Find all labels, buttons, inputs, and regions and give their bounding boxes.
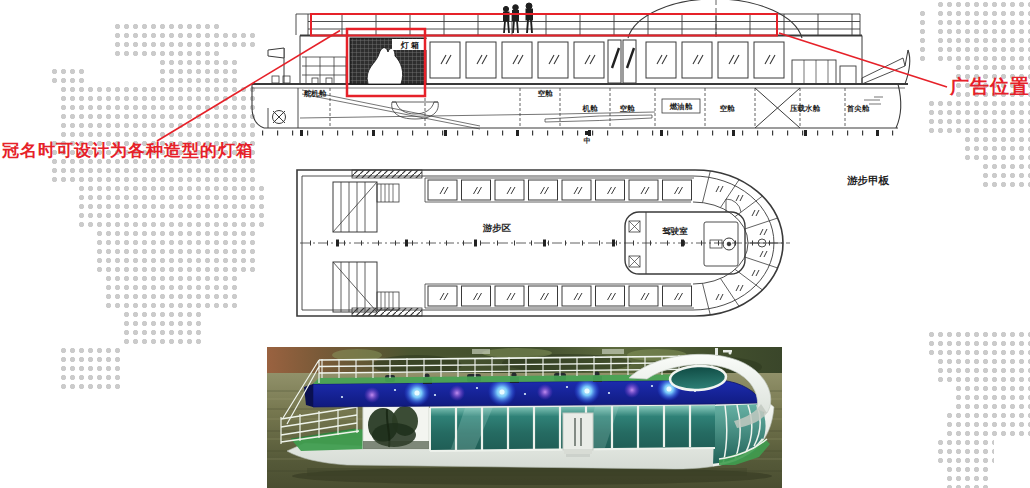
hull-internals: [300, 88, 845, 129]
photo-canopy-mast: [715, 348, 718, 355]
plan-door-swing: [726, 199, 741, 212]
boat-photo: [267, 347, 782, 488]
lightbox-annotation-text: 冠名时可设计为各种造型的灯箱: [2, 139, 254, 162]
compartment-label: 空舱: [538, 89, 554, 98]
compartment-label: 燃油舱: [669, 102, 693, 111]
people-figures: [503, 3, 532, 33]
waterline-marks: [864, 97, 883, 104]
ad-position-annotation-text: 广告位置: [950, 74, 1030, 100]
photo-cabin-door: [563, 413, 593, 457]
deck-plan-drawing: 驾驶室 游步区 游步甲板: [297, 170, 890, 316]
boat-diagrams: 灯 箱: [0, 0, 1030, 488]
compartment-label: 舵机舱: [303, 89, 327, 98]
wheelhouse-label: 驾驶室: [661, 226, 688, 236]
photo-billboard-panel: [363, 403, 429, 449]
promenade-area-label: 游步区: [482, 222, 512, 233]
lightbox-leader-line: [157, 31, 340, 142]
lightbox-area: 灯 箱: [350, 38, 428, 84]
midship-mark: 中: [584, 136, 591, 144]
lightbox-label: 灯 箱: [400, 41, 419, 50]
compartment-label: 首尖舱: [846, 104, 870, 113]
ad-position-highlight-box: [311, 14, 777, 36]
side-elevation-drawing: 灯 箱: [252, 0, 910, 144]
plan-stairs-lower: [333, 262, 399, 312]
foredeck-structures: [792, 50, 908, 104]
compartment-label: 空舱: [720, 104, 736, 113]
plan-stairs-upper: [333, 182, 399, 232]
elevation-windows: [430, 42, 784, 78]
slide: 灯 箱: [0, 0, 1030, 488]
compartment-label: 机舱: [582, 104, 599, 113]
plan-hatch-strip-top: [352, 170, 422, 178]
compartment-label: 空舱: [620, 104, 636, 113]
dome-canopy: [628, 0, 802, 38]
elevation-door: [608, 40, 636, 83]
promenade-deck-label: 游步甲板: [847, 174, 890, 186]
compartment-label: 压载水舱: [789, 104, 821, 113]
